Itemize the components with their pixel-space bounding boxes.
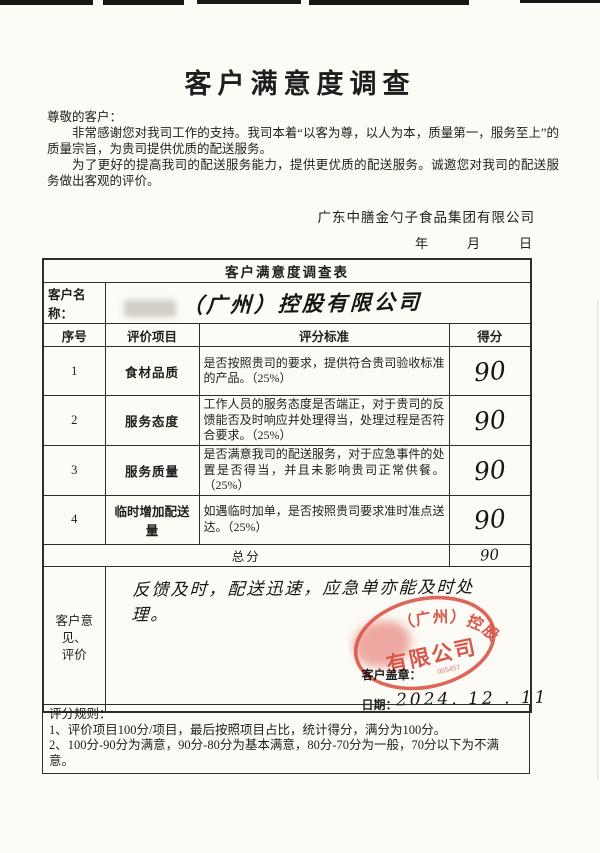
- scan-artifact-bar: [103, 0, 184, 5]
- row-score-handwritten: 90: [449, 396, 531, 446]
- row-item: 临时增加配送量: [105, 495, 199, 544]
- redacted-company-prefix: [124, 300, 176, 317]
- salutation: 尊敬的客户：: [47, 109, 559, 125]
- total-label: 总分: [43, 544, 449, 566]
- customer-name-label: 客户名称：: [43, 283, 105, 324]
- scan-artifact-bar: [520, 0, 600, 3]
- row-criteria: 工作人员的服务态度是否端正，对于贵司的反馈能否及时响应并处理得当，处理过程是否符…: [199, 396, 449, 446]
- row-score-handwritten: 90: [449, 446, 531, 496]
- signature-date-blank: 年 月 日: [415, 233, 532, 252]
- col-header-score: 得分: [449, 324, 531, 347]
- row-score-handwritten: 90: [449, 347, 531, 396]
- row-no: 3: [43, 446, 105, 496]
- col-header-no: 序号: [43, 324, 105, 347]
- customer-name-row: 客户名称： （广州）控股有限公司: [43, 283, 531, 324]
- total-row: 总分 90: [43, 544, 531, 566]
- col-header-criteria: 评分标准: [199, 324, 449, 347]
- scan-artifact-bar: [0, 0, 93, 5]
- col-header-item: 评价项目: [105, 324, 199, 347]
- table-row: 3 服务质量 是否满意我司的配送服务，对于应急事件的处置是否得当，并且未影响贵司…: [43, 446, 531, 496]
- column-header-row: 序号 评价项目 评分标准 得分: [43, 324, 531, 347]
- rule-line-1: 1、评价项目100分/项目，最后按照项目占比，统计得分，满分为100分。: [49, 723, 523, 739]
- row-score-handwritten: 90: [449, 495, 531, 544]
- customer-name-handwritten: （广州）控股有限公司: [181, 286, 422, 320]
- day-label: 日: [519, 233, 532, 252]
- scoring-rules-box: 评分规则： 1、评价项目100分/项目，最后按照项目占比，统计得分，满分为100…: [42, 704, 530, 774]
- customer-name-cell: （广州）控股有限公司: [105, 283, 531, 324]
- scan-artifact-bar: [309, 0, 469, 5]
- table-row: 4 临时增加配送量 如遇临时加单，是否按照贵司要求准时准点送达。（25%） 90: [43, 495, 531, 544]
- page-title: 客户满意度调查: [0, 62, 600, 101]
- row-criteria: 是否满意我司的配送服务，对于应急事件的处置是否得当，并且未影响贵司正常供餐。（2…: [199, 446, 449, 496]
- company-signature: 广东中膳金勺子食品集团有限公司: [0, 206, 535, 226]
- table-title: 客户满意度调查表: [43, 259, 531, 283]
- row-no: 2: [43, 396, 105, 446]
- rules-heading: 评分规则：: [49, 707, 523, 723]
- scan-artifact-bar: [197, 0, 301, 4]
- table-row: 2 服务态度 工作人员的服务态度是否端正，对于贵司的反馈能否及时响应并处理得当，…: [43, 396, 531, 446]
- opinion-label: 客户意见、 评价: [43, 566, 105, 712]
- intro-letter: 尊敬的客户： 非常感谢您对我司工作的支持。我司本着“以客为尊，以人为本，质量第一…: [47, 109, 559, 189]
- row-criteria: 是否按照贵司的要求，提供符合贵司验收标准的产品。（25%）: [199, 347, 449, 396]
- row-item: 服务质量: [105, 446, 199, 496]
- row-item: 食材品质: [105, 347, 199, 396]
- year-label: 年: [415, 233, 428, 252]
- rule-line-2: 2、100分-90分为满意，90分-80分为基本满意，80分-70分为一般，70…: [49, 738, 523, 769]
- row-criteria: 如遇临时加单，是否按照贵司要求准时准点送达。（25%）: [199, 495, 449, 544]
- table-title-row: 客户满意度调查表: [43, 259, 531, 283]
- scan-edge-line: [597, 300, 598, 780]
- intro-paragraph-1: 非常感谢您对我司工作的支持。我司本着“以客为尊，以人为本，质量第一，服务至上”的…: [47, 125, 559, 157]
- month-label: 月: [467, 233, 480, 252]
- row-no: 1: [43, 347, 105, 396]
- table-row: 1 食材品质 是否按照贵司的要求，提供符合贵司验收标准的产品。（25%） 90: [43, 347, 531, 396]
- intro-paragraph-2: 为了更好的提高我司的配送服务能力，提供更优质的配送服务。诚邀您对我司的配送服务做…: [47, 157, 559, 189]
- total-score-handwritten: 90: [449, 544, 531, 566]
- scanned-survey-document: 客户满意度调查 尊敬的客户： 非常感谢您对我司工作的支持。我司本着“以客为尊，以…: [0, 0, 600, 853]
- row-item: 服务态度: [105, 396, 199, 446]
- row-no: 4: [43, 495, 105, 544]
